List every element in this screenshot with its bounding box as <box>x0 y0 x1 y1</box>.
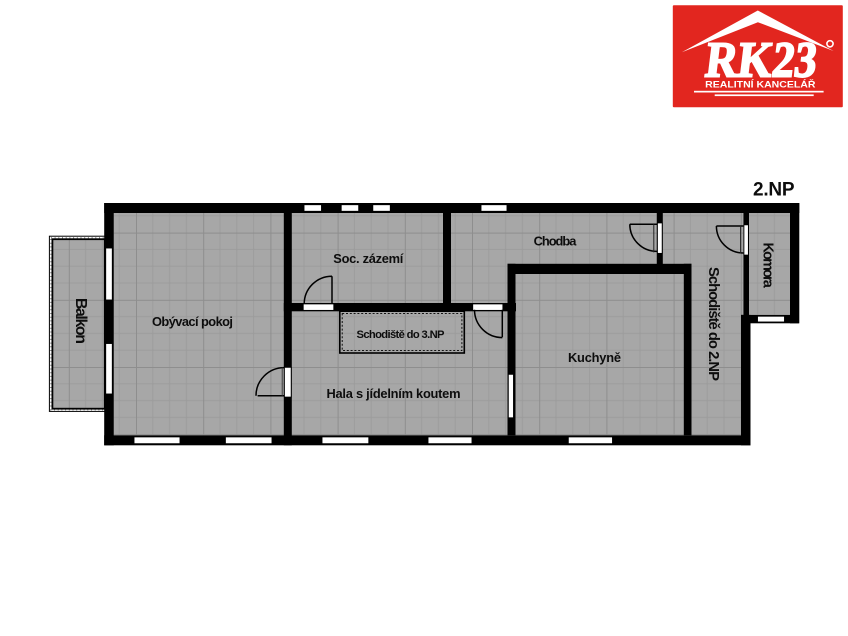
svg-text:2.NP: 2.NP <box>753 180 795 201</box>
svg-text:Kuchyně: Kuchyně <box>568 350 621 365</box>
svg-text:Schodiště do 2.NP: Schodiště do 2.NP <box>705 267 721 381</box>
svg-text:Chodba: Chodba <box>534 234 578 249</box>
svg-text:Hala s jídelním koutem: Hala s jídelním koutem <box>327 386 461 401</box>
svg-text:Schodiště do 3.NP: Schodiště do 3.NP <box>357 329 446 341</box>
svg-text:REALITNÍ KANCELÁŘ: REALITNÍ KANCELÁŘ <box>705 78 816 89</box>
svg-text:Soc. zázemí: Soc. zázemí <box>333 251 403 266</box>
svg-text:Komora: Komora <box>760 243 776 289</box>
svg-text:Balkon: Balkon <box>72 298 89 344</box>
svg-text:Obývací pokoj: Obývací pokoj <box>152 314 233 329</box>
